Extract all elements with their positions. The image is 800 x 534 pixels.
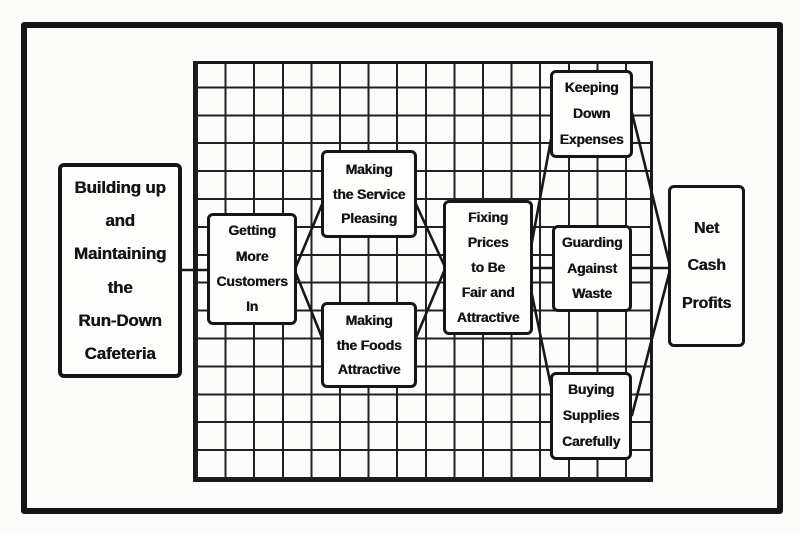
- diagram-stage: Building up and Maintaining the Run-Down…: [0, 0, 800, 534]
- node-buying-supplies-carefully: Buying Supplies Carefully: [550, 372, 632, 460]
- edge-supplies-netcash: [632, 270, 670, 415]
- edge-expenses-netcash: [632, 113, 670, 266]
- node-fixing-prices: Fixing Prices to Be Fair and Attractive: [443, 200, 533, 335]
- edge-customers-foods: [295, 271, 323, 340]
- node-making-foods-attractive: Making the Foods Attractive: [321, 302, 417, 388]
- edge-fixing-supplies: [531, 290, 552, 391]
- node-getting-more-customers: Getting More Customers In: [207, 213, 297, 325]
- edge-service-fixing: [415, 202, 445, 267]
- node-making-service-pleasing: Making the Service Pleasing: [321, 150, 417, 238]
- node-keeping-down-expenses: Keeping Down Expenses: [550, 70, 633, 158]
- node-guarding-against-waste: Guarding Against Waste: [552, 225, 632, 312]
- edge-customers-service: [295, 202, 323, 269]
- edge-foods-fixing: [415, 269, 445, 340]
- edge-fixing-expenses: [531, 134, 552, 247]
- node-building-up-cafeteria: Building up and Maintaining the Run-Down…: [58, 163, 182, 378]
- node-net-cash-profits: Net Cash Profits: [668, 185, 745, 347]
